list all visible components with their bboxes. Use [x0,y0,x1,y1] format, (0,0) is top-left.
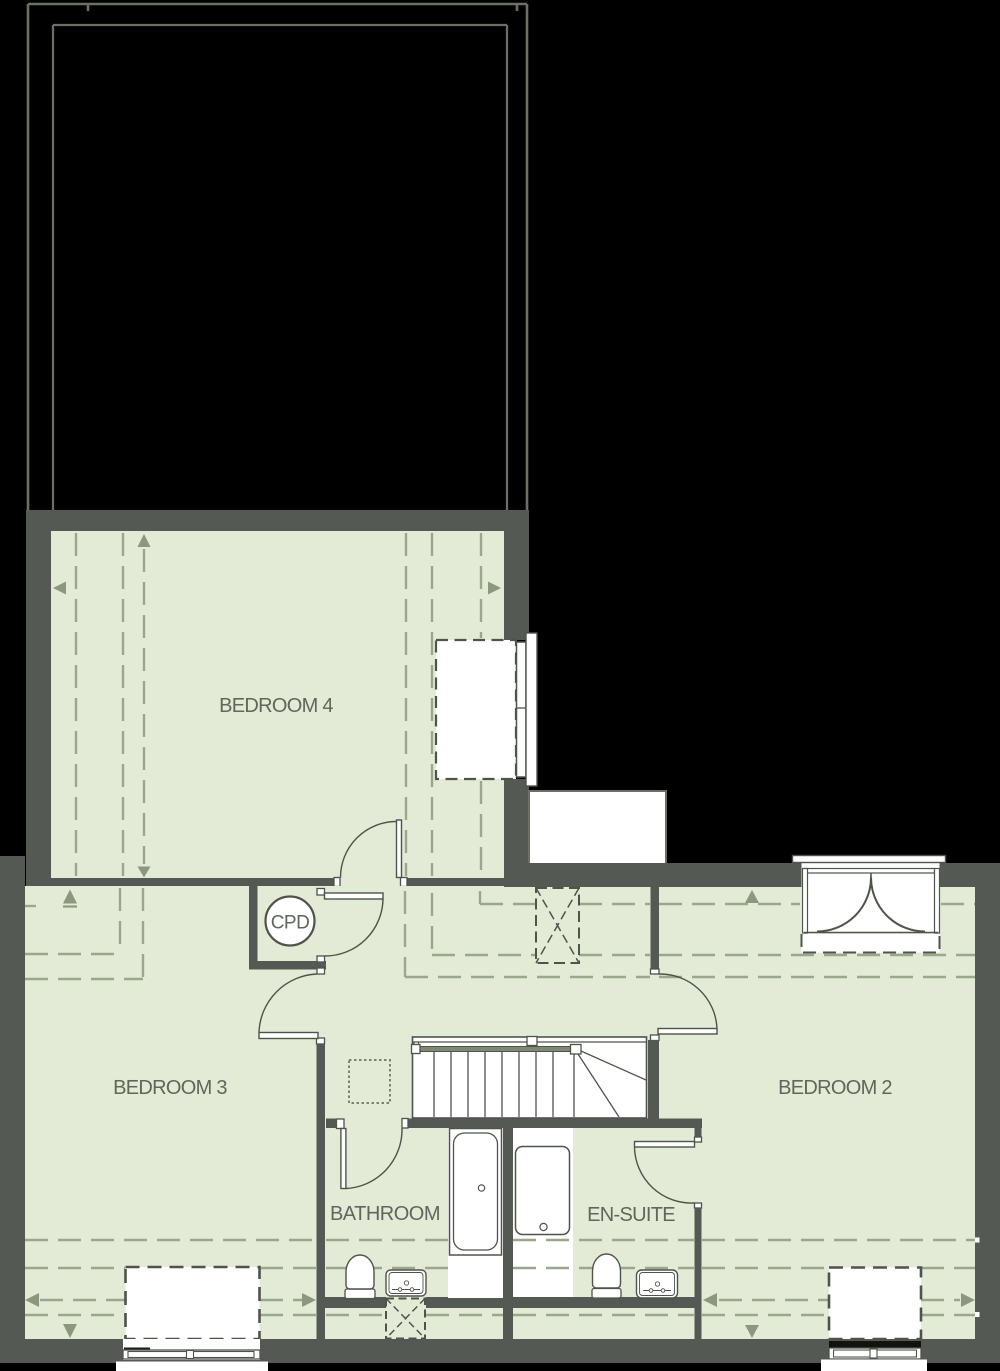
svg-text:BEDROOM 2: BEDROOM 2 [778,1077,892,1099]
svg-text:EN-SUITE: EN-SUITE [587,1204,675,1226]
svg-text:BEDROOM 3: BEDROOM 3 [113,1077,227,1099]
svg-text:CPD: CPD [271,912,310,933]
svg-text:BEDROOM 4: BEDROOM 4 [219,695,333,717]
svg-text:BATHROOM: BATHROOM [330,1203,440,1225]
